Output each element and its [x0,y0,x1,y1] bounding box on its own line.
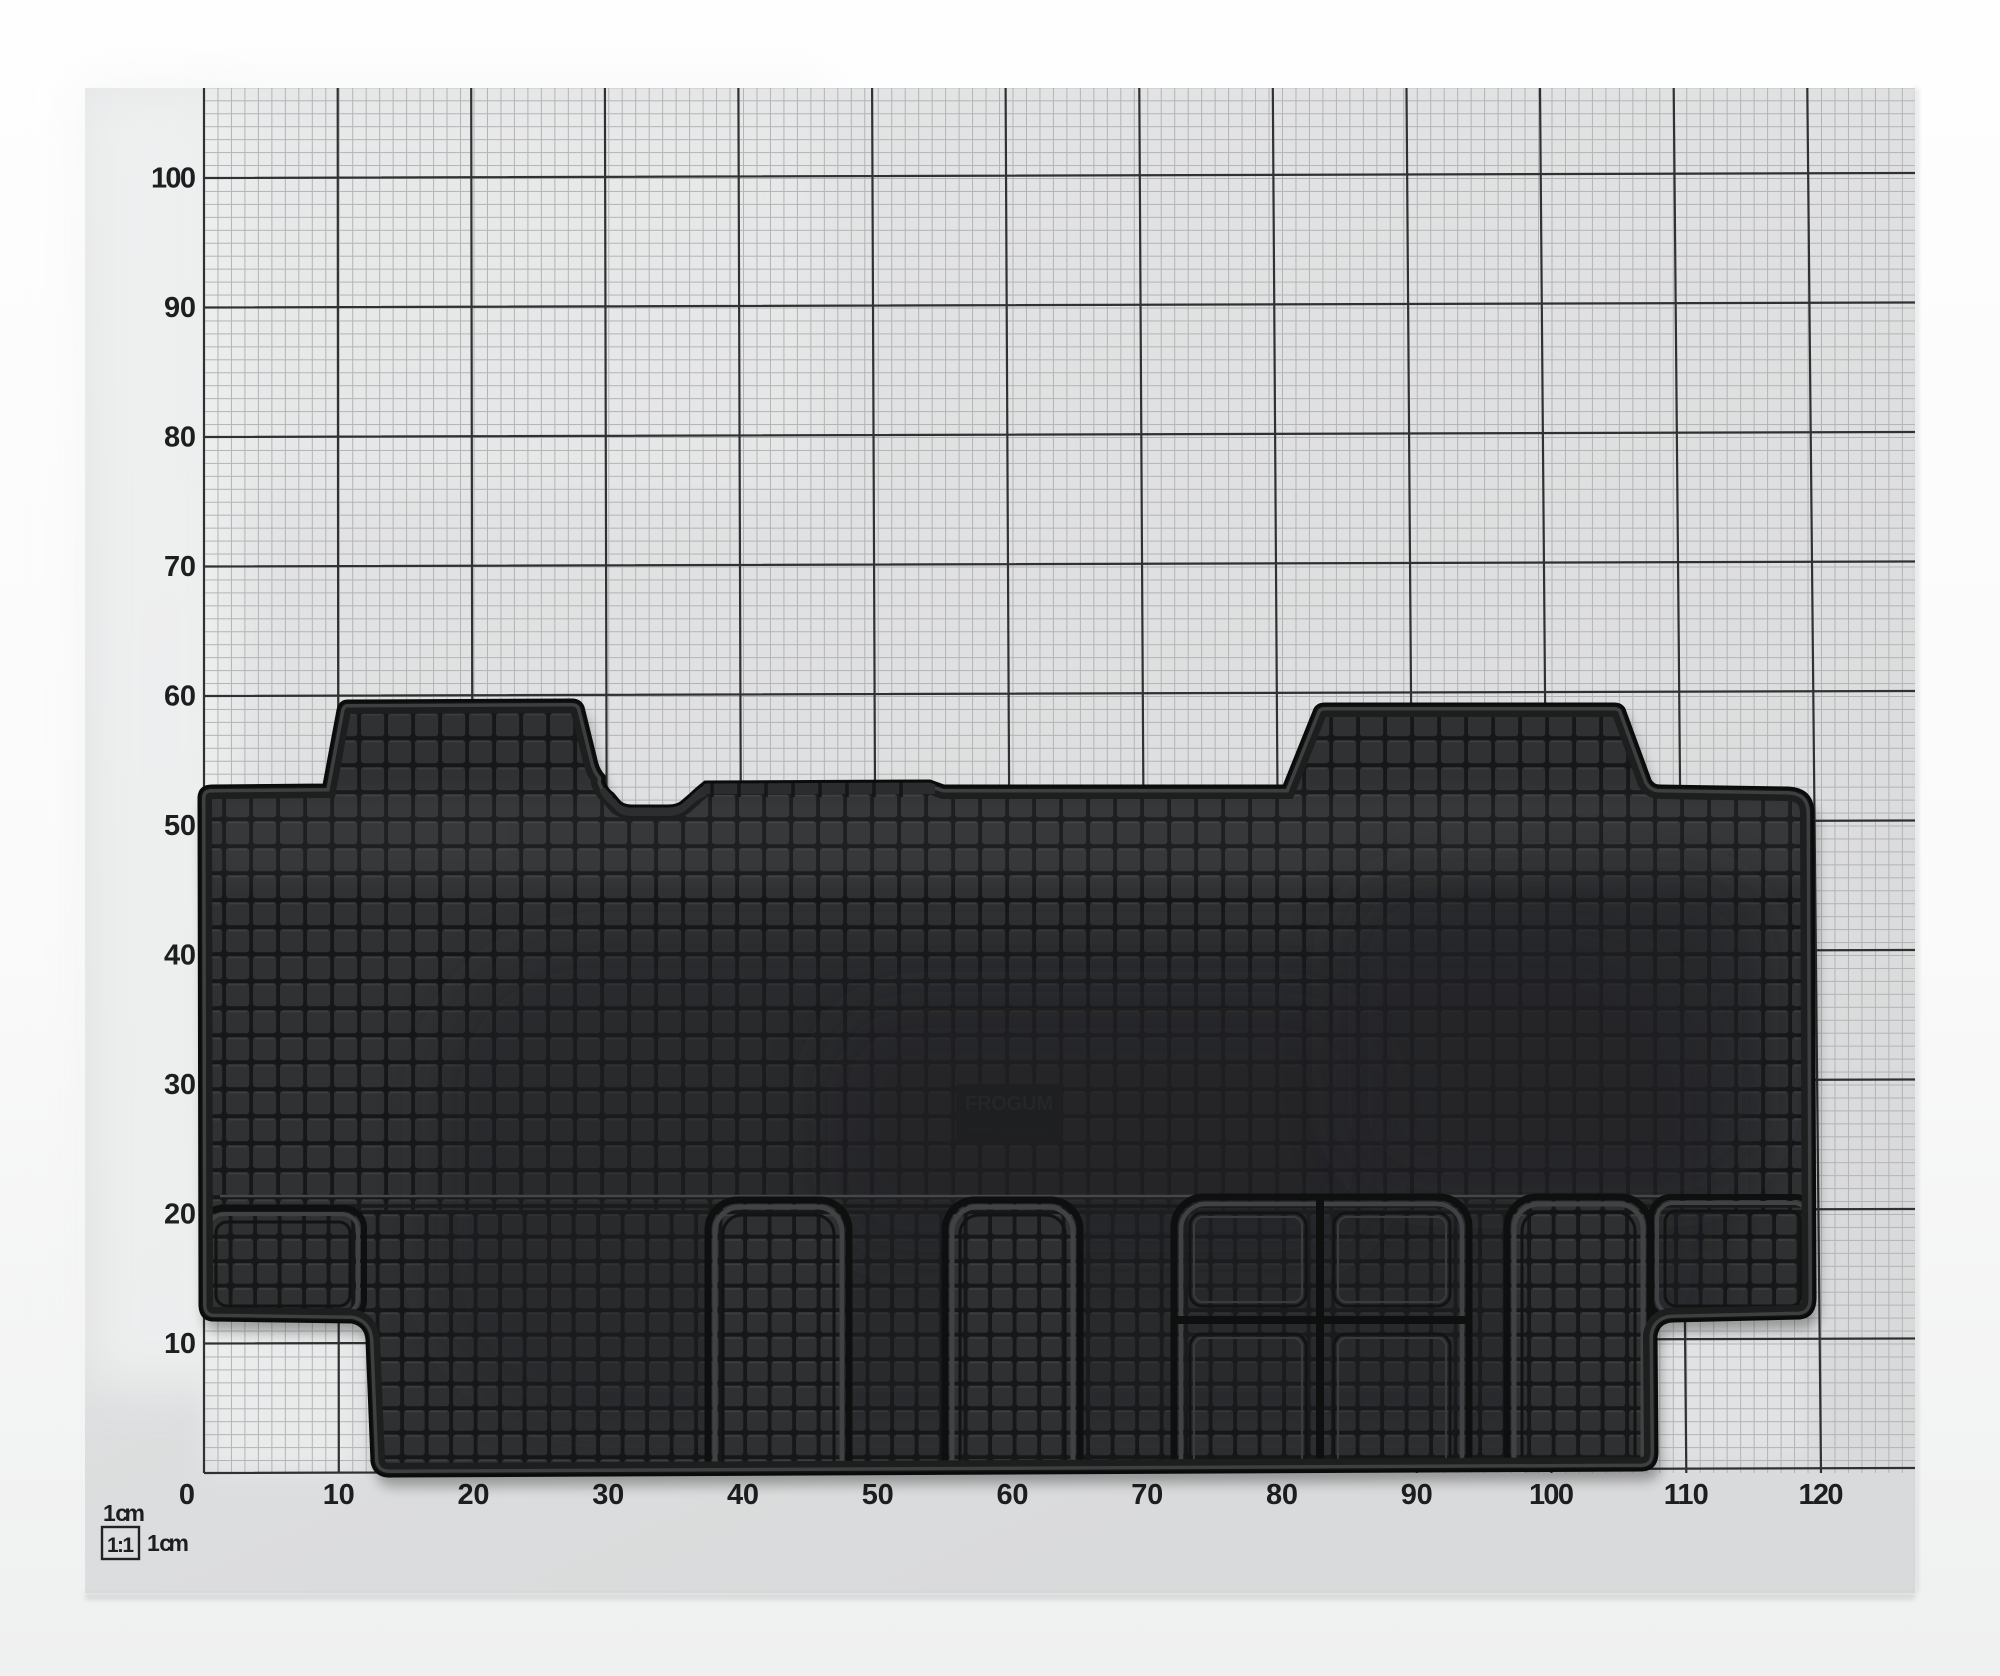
svg-text:MADE IN EU 100%: MADE IN EU 100% [969,1124,1049,1134]
svg-text:20: 20 [164,1199,196,1231]
svg-text:100: 100 [151,163,196,195]
svg-text:90: 90 [164,292,196,324]
svg-text:30: 30 [164,1069,196,1101]
svg-text:10: 10 [323,1479,355,1511]
svg-text:1 cm: 1 cm [103,1500,145,1526]
svg-text:50: 50 [164,810,196,842]
svg-text:70: 70 [164,551,196,583]
svg-text:70: 70 [1131,1479,1163,1511]
svg-text:60: 60 [164,681,196,713]
svg-text:120: 120 [1799,1479,1844,1511]
svg-text:0: 0 [179,1479,195,1511]
svg-text:1:1: 1:1 [107,1534,134,1557]
svg-text:110: 110 [1664,1479,1709,1511]
svg-text:100: 100 [1529,1479,1574,1511]
svg-text:FROGUM: FROGUM [965,1093,1053,1115]
svg-text:80: 80 [164,422,196,454]
svg-text:10: 10 [164,1328,196,1360]
svg-text:90: 90 [1401,1479,1433,1511]
svg-text:80: 80 [1266,1479,1298,1511]
svg-text:1 cm: 1 cm [147,1530,189,1556]
svg-text:40: 40 [164,940,196,972]
